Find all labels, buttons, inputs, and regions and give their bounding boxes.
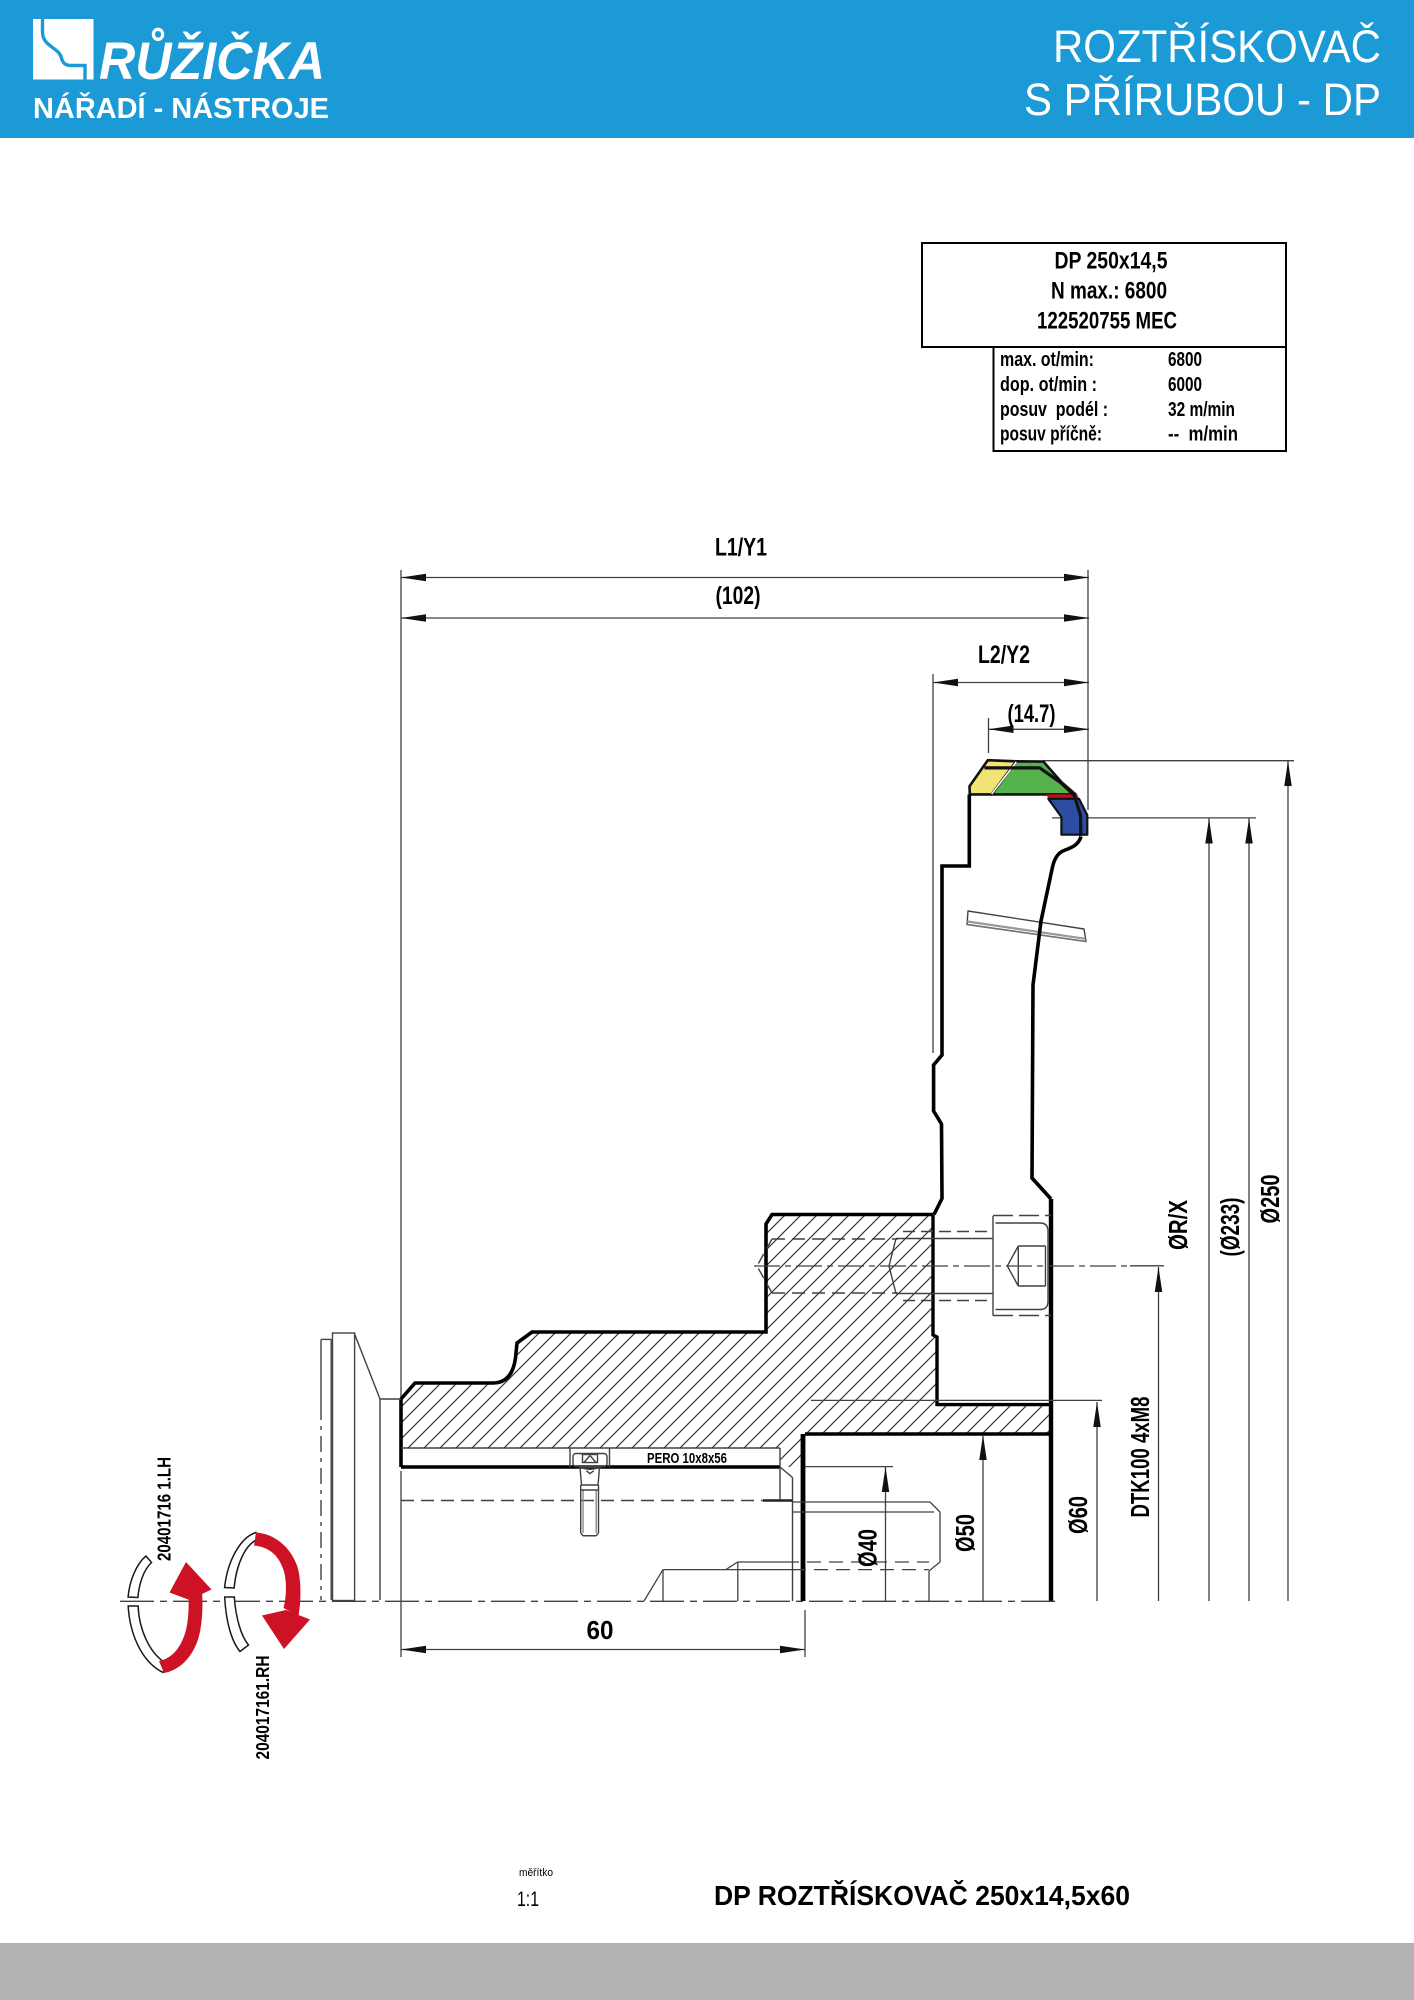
svg-text:1:1: 1:1 bbox=[517, 1888, 539, 1911]
svg-text:N max.: 6800: N max.: 6800 bbox=[1051, 278, 1167, 305]
svg-text:NÁŘADÍ - NÁSTROJE: NÁŘADÍ - NÁSTROJE bbox=[33, 91, 329, 125]
svg-text:32 m/min: 32 m/min bbox=[1168, 399, 1235, 421]
svg-text:(102): (102) bbox=[716, 582, 761, 610]
svg-text:60: 60 bbox=[587, 1615, 614, 1645]
svg-text:6000: 6000 bbox=[1168, 374, 1202, 396]
svg-text:-- m/min: -- m/min bbox=[1168, 424, 1238, 446]
svg-text:ØR/X: ØR/X bbox=[1163, 1199, 1193, 1250]
svg-text:měřítko: měřítko bbox=[519, 1867, 553, 1879]
svg-text:ROZTŘÍSKOVAČ: ROZTŘÍSKOVAČ bbox=[1053, 21, 1381, 72]
svg-text:6800: 6800 bbox=[1168, 349, 1202, 371]
svg-text:122520755 MEC: 122520755 MEC bbox=[1037, 308, 1177, 335]
svg-text:Ø250: Ø250 bbox=[1255, 1175, 1285, 1224]
svg-text:(Ø233): (Ø233) bbox=[1215, 1198, 1245, 1257]
svg-text:Ø50: Ø50 bbox=[950, 1514, 980, 1552]
svg-text:max. ot/min:: max. ot/min: bbox=[1000, 349, 1094, 371]
svg-text:204017161.RH: 204017161.RH bbox=[253, 1656, 273, 1760]
svg-text:(14.7): (14.7) bbox=[1008, 700, 1056, 728]
svg-text:DP ROZTŘÍSKOVAČ 250x14,5x60: DP ROZTŘÍSKOVAČ 250x14,5x60 bbox=[714, 1879, 1130, 1911]
svg-text:PERO 10x8x56: PERO 10x8x56 bbox=[647, 1450, 727, 1467]
svg-text:L2/Y2: L2/Y2 bbox=[978, 641, 1030, 669]
svg-text:S PŘÍRUBOU - DP: S PŘÍRUBOU - DP bbox=[1024, 74, 1381, 125]
svg-text:posuv příčně:: posuv příčně: bbox=[1000, 424, 1102, 446]
svg-text:DTK100 4xM8: DTK100 4xM8 bbox=[1125, 1397, 1155, 1518]
svg-text:Ø60: Ø60 bbox=[1063, 1496, 1093, 1534]
svg-text:dop. ot/min :: dop. ot/min : bbox=[1000, 374, 1097, 396]
svg-text:20401716 1.LH: 20401716 1.LH bbox=[155, 1457, 175, 1561]
svg-text:RŮŽIČKA: RŮŽIČKA bbox=[99, 27, 325, 91]
svg-text:DP 250x14,5: DP 250x14,5 bbox=[1055, 248, 1168, 275]
svg-text:L1/Y1: L1/Y1 bbox=[715, 534, 767, 562]
svg-text:posuv podél :: posuv podél : bbox=[1000, 399, 1108, 421]
svg-text:Ø40: Ø40 bbox=[853, 1529, 883, 1567]
